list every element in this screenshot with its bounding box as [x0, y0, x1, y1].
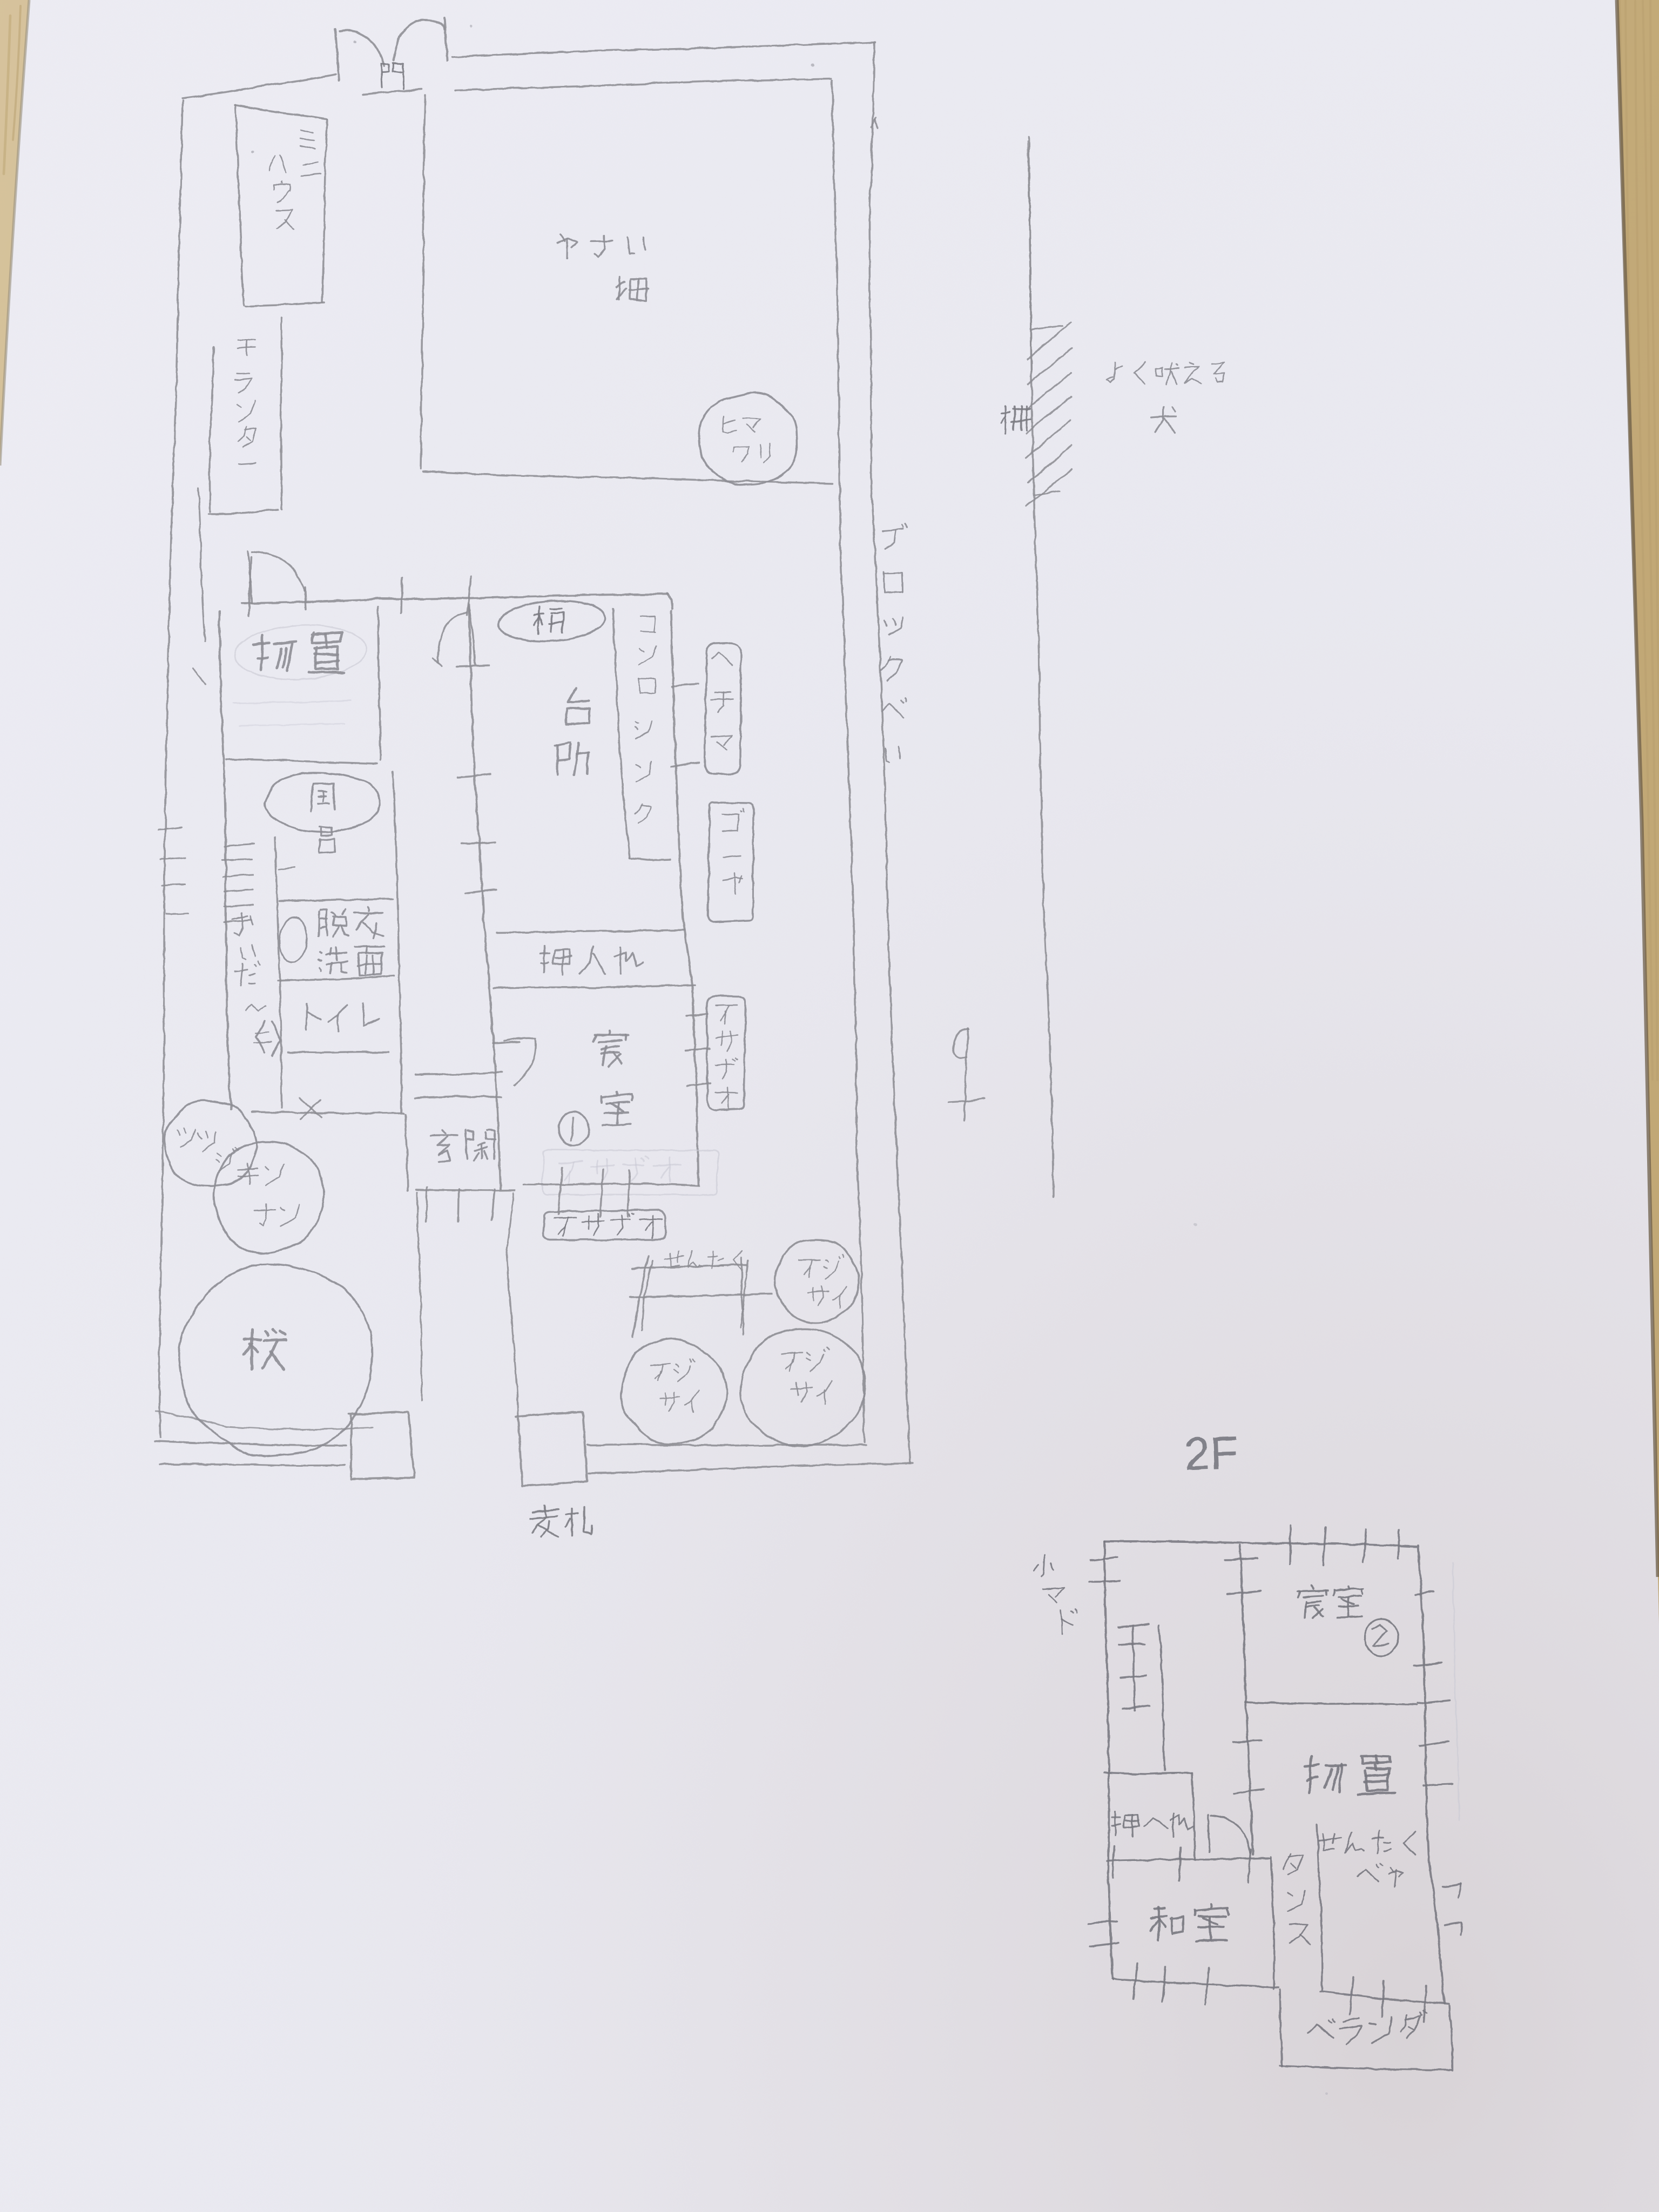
svg-text:2F: 2F [1183, 1427, 1239, 1480]
